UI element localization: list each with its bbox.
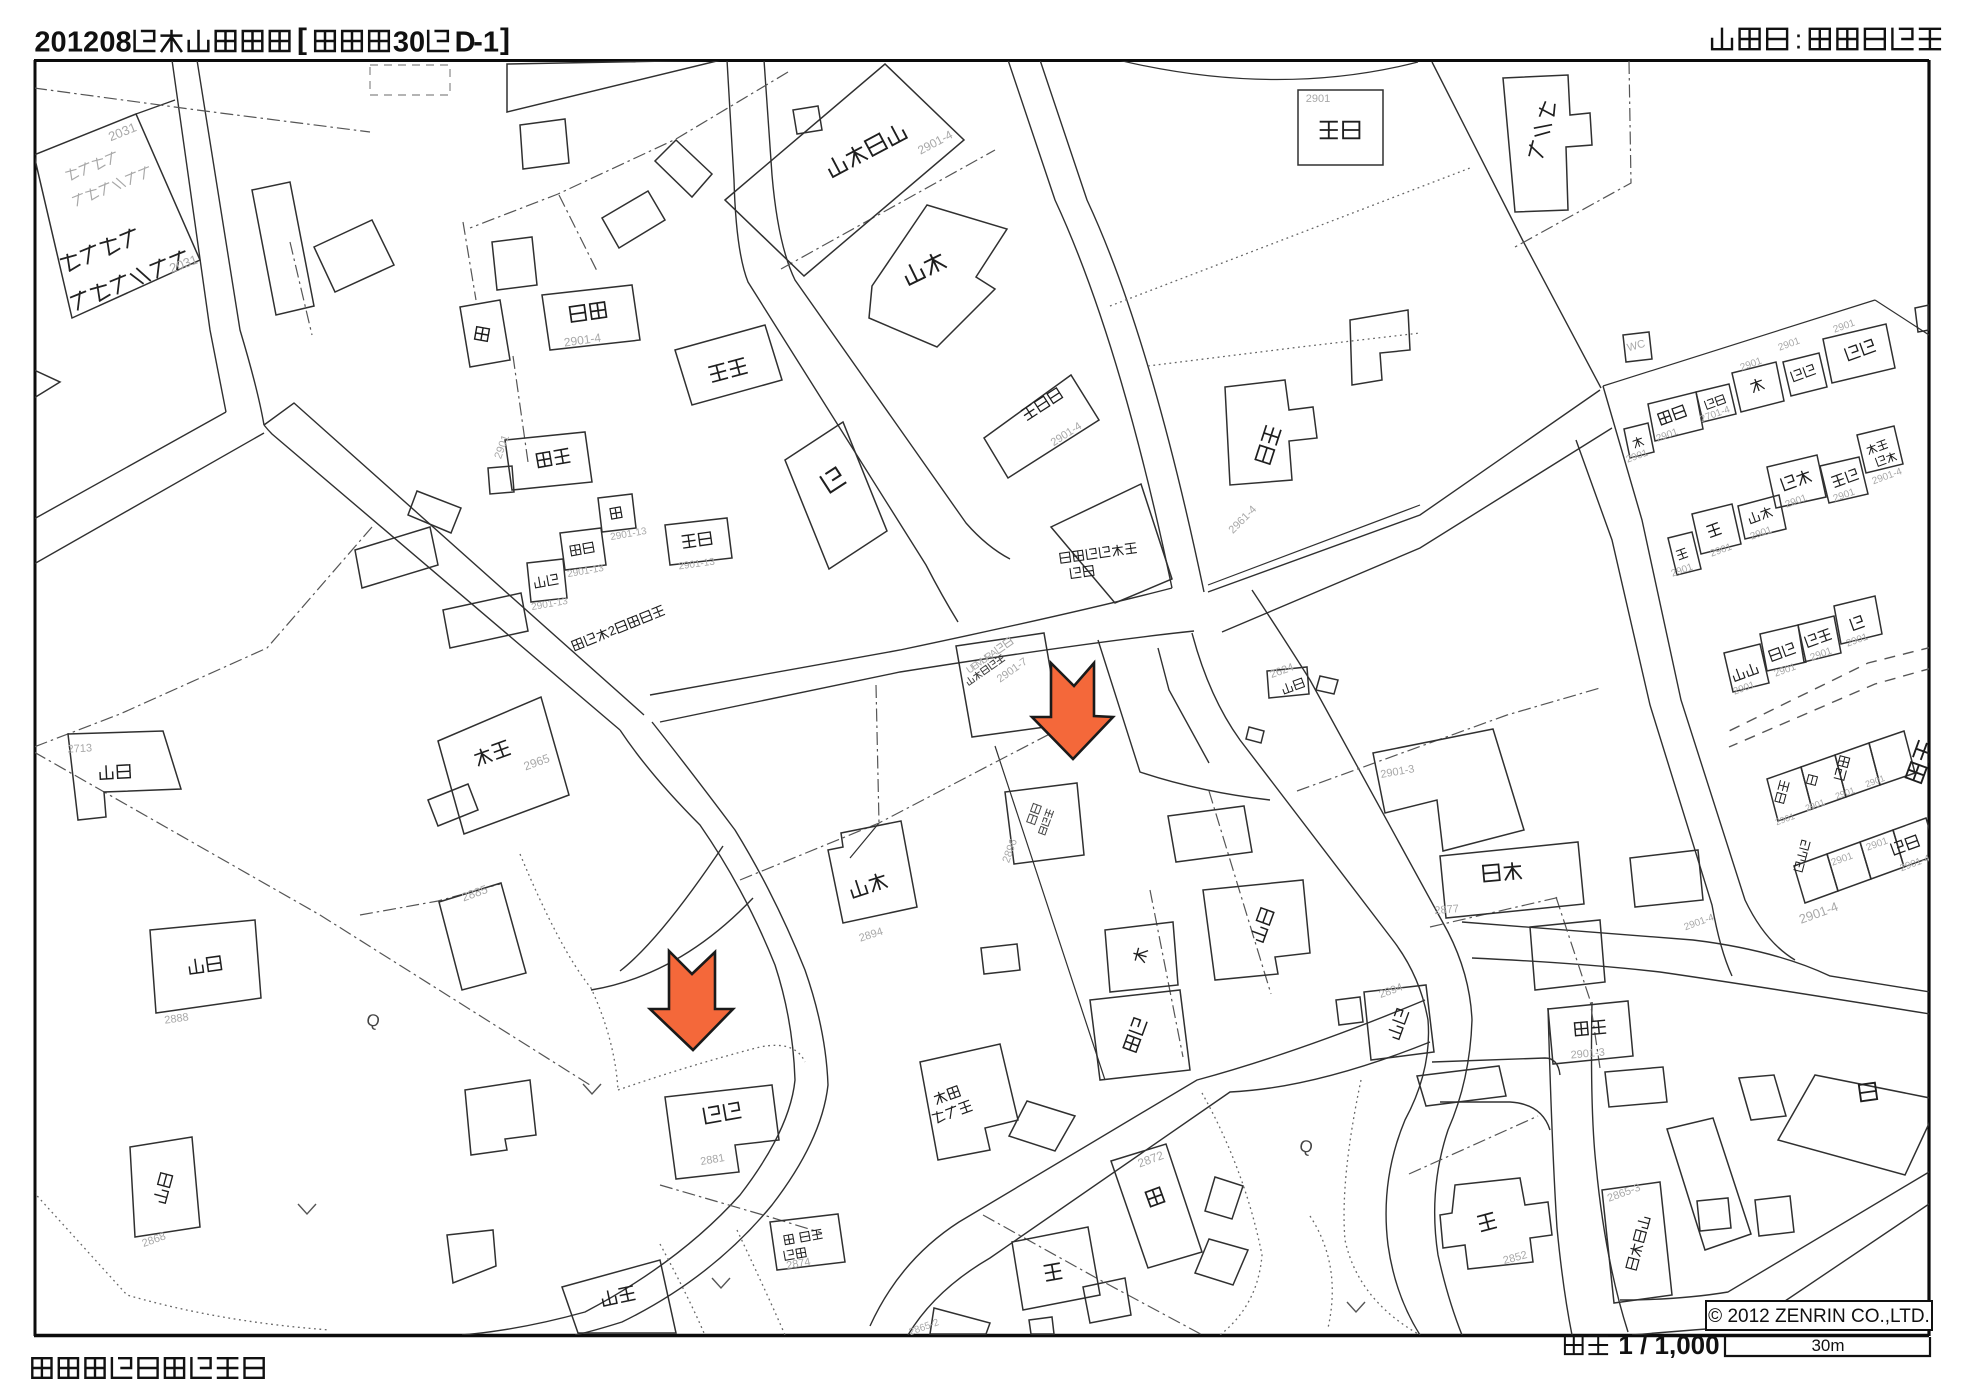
svg-text:© 2012 ZENRIN CO.,LTD.: © 2012 ZENRIN CO.,LTD. xyxy=(1708,1306,1930,1327)
svg-text::: : xyxy=(1795,25,1803,55)
svg-text:8: 8 xyxy=(116,26,132,58)
svg-text:2: 2 xyxy=(34,26,50,58)
svg-text:2713: 2713 xyxy=(67,742,92,755)
svg-text:[: [ xyxy=(297,23,307,56)
svg-text:0: 0 xyxy=(51,26,67,58)
svg-text:1: 1 xyxy=(67,26,83,58)
svg-text:]: ] xyxy=(500,23,510,56)
svg-text:3: 3 xyxy=(393,26,409,58)
svg-text:2877: 2877 xyxy=(1434,903,1459,917)
svg-text:30m: 30m xyxy=(1811,1336,1844,1355)
svg-text:2: 2 xyxy=(83,26,99,58)
svg-text:2901: 2901 xyxy=(1306,93,1330,105)
svg-text:0: 0 xyxy=(409,26,425,58)
svg-text:1 / 1,000: 1 / 1,000 xyxy=(1618,1330,1719,1360)
svg-text:0: 0 xyxy=(99,26,115,58)
svg-text:1: 1 xyxy=(483,26,499,58)
svg-text:-: - xyxy=(473,26,483,58)
